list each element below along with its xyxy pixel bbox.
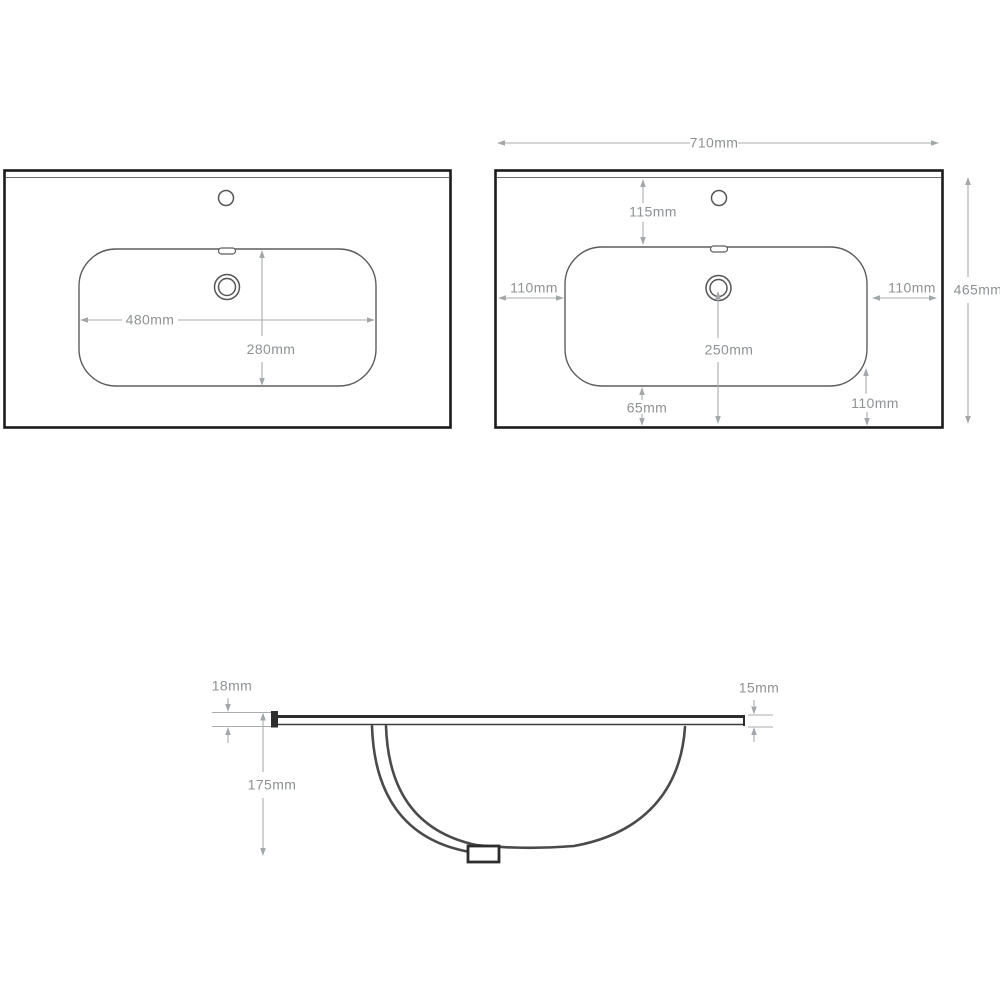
bowl-right-wall (476, 727, 685, 848)
dimension-label: 110mm (851, 395, 899, 411)
dimension-label: 110mm (888, 280, 936, 296)
bowl-inner-wall (386, 726, 476, 845)
technical-drawing-page: 480mm 280mm 710mm 115mm (0, 0, 1000, 1000)
overflow-slot-left (219, 248, 236, 254)
slab-left-cap (272, 712, 278, 728)
tap-hole-right (712, 191, 727, 206)
dimension-label: 15mm (739, 680, 780, 696)
dimension-overall-depth-465: 465mm (954, 177, 1000, 424)
dimension-bowl-depth-175: 175mm (248, 713, 297, 857)
overflow-slot-right (711, 246, 728, 252)
tap-hole-left (219, 191, 234, 206)
dimension-label: 250mm (705, 342, 754, 358)
dimension-label: 115mm (629, 204, 677, 220)
dimension-label: 175mm (248, 777, 297, 793)
dimension-overall-width-710: 710mm (497, 135, 939, 151)
dimension-label: 465mm (954, 282, 1000, 298)
dimension-label: 480mm (126, 312, 175, 328)
dimension-thickness-right-15: 15mm (739, 680, 780, 743)
top-view-right: 710mm 115mm 110mm 110mm 465mm (496, 135, 1000, 428)
dimension-label: 65mm (627, 400, 668, 416)
dimension-label: 18mm (212, 678, 253, 694)
drain-fitting (468, 846, 499, 862)
top-view-left: 480mm 280mm (5, 171, 451, 428)
dimension-label: 710mm (690, 135, 739, 151)
dimension-label: 110mm (510, 280, 558, 296)
basin-technical-drawing: 480mm 280mm 710mm 115mm (0, 0, 1000, 1000)
section-view: 18mm 15mm 175mm (212, 678, 780, 863)
dimension-label: 280mm (247, 341, 296, 357)
dimension-thickness-left-18: 18mm (212, 678, 271, 744)
drain-inner-left (219, 279, 236, 296)
